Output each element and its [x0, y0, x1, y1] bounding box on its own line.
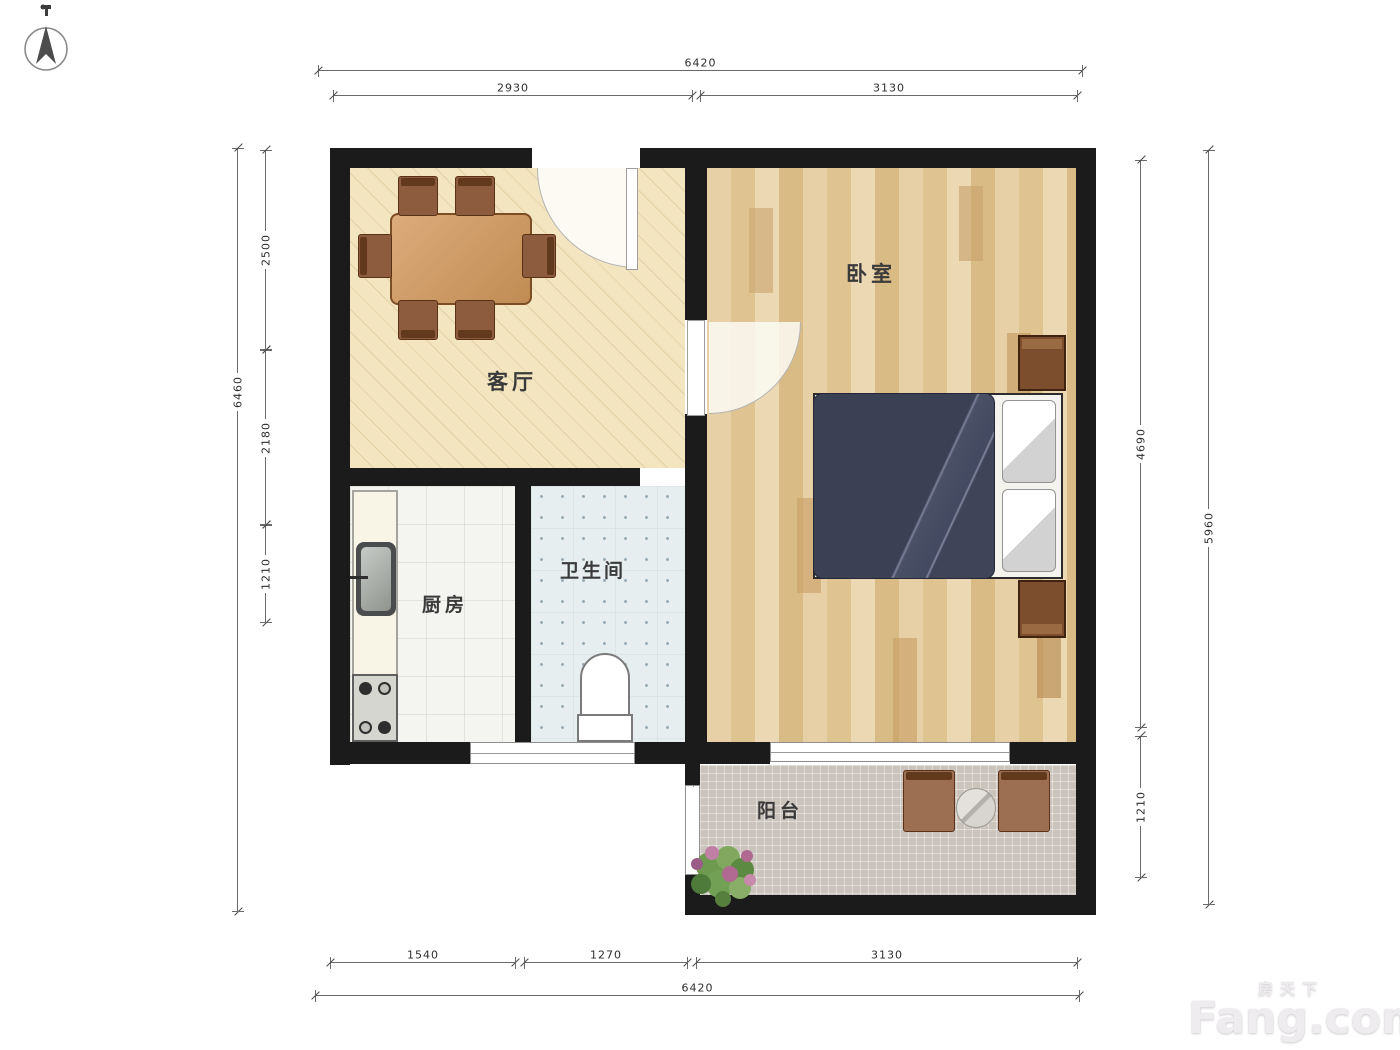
dimension-label: 1210	[1135, 788, 1148, 826]
wall-segment	[685, 148, 707, 320]
dimension-right-outer: 5960	[1208, 150, 1209, 905]
wood-plank-patch	[749, 208, 773, 293]
wall-segment	[685, 764, 700, 785]
dimension-left-seg3: 1210	[265, 525, 266, 623]
watermark-en: Fang.com	[1188, 993, 1394, 1044]
burner	[359, 682, 372, 695]
dimension-left-outer: 6460	[237, 148, 238, 912]
dimension-bottom-seg1: 1540	[330, 962, 516, 963]
wall-segment	[330, 148, 532, 168]
dimension-label: 4690	[1135, 425, 1148, 463]
dining-table	[390, 213, 532, 305]
floor-plan: 客厅 卧室 厨房 卫生间 阳台 6420 2930 3130 1540 1270…	[0, 0, 1400, 1050]
toilet-tank	[577, 714, 633, 742]
wood-plank-patch	[959, 186, 983, 261]
potted-plant	[688, 836, 762, 908]
dimension-top-seg2: 3130	[700, 95, 1078, 96]
dimension-top-seg1: 2930	[333, 95, 693, 96]
balcony-chair	[903, 770, 955, 832]
kitchen-sink	[356, 542, 396, 616]
dimension-bottom-seg2: 1270	[524, 962, 688, 963]
dimension-label: 2930	[494, 82, 532, 95]
wall-segment	[635, 742, 770, 764]
dimension-label: 6460	[232, 373, 245, 411]
balcony-chair	[998, 770, 1050, 832]
nightstand-top	[1022, 624, 1062, 634]
dimension-bottom-outer: 6420	[315, 995, 1080, 996]
window	[470, 742, 635, 764]
wall-segment	[1076, 148, 1096, 915]
sink-faucet	[350, 576, 368, 579]
dining-chair	[398, 176, 438, 216]
wall-segment	[685, 414, 707, 764]
sink-basin	[361, 547, 391, 611]
wood-plank-patch	[893, 638, 917, 748]
wall-segment	[330, 148, 350, 765]
wall-segment	[515, 486, 531, 742]
dining-chair	[398, 300, 438, 340]
nightstand	[1018, 335, 1066, 391]
burner	[359, 721, 372, 734]
room-label-balcony: 阳台	[757, 796, 803, 823]
balcony-sliding-door	[770, 742, 1010, 762]
dimension-label: 1270	[587, 949, 625, 962]
dimension-label: 3130	[868, 949, 906, 962]
dining-chair	[522, 234, 556, 278]
dimension-left-seg1: 2500	[265, 150, 266, 350]
bed-pillow	[1002, 400, 1056, 483]
dimension-bottom-seg3: 3130	[696, 962, 1078, 963]
wall-segment	[640, 148, 1096, 168]
room-label-kitchen: 厨房	[422, 590, 468, 617]
fang-watermark: 房天下 Fang.com	[1188, 978, 1394, 1044]
toilet-bowl	[580, 653, 630, 717]
room-label-living: 客厅	[487, 366, 537, 396]
dimension-left-seg2: 2180	[265, 350, 266, 525]
wall-segment	[330, 742, 470, 764]
dimension-top-outer: 6420	[318, 70, 1083, 71]
dimension-label: 2500	[260, 231, 273, 269]
stove	[352, 674, 398, 742]
burner	[378, 721, 391, 734]
dimension-right-seg1: 4690	[1140, 160, 1141, 728]
dining-chair	[358, 234, 392, 278]
compass-icon	[16, 2, 76, 76]
entry-door-leaf	[626, 168, 638, 270]
dimension-label: 3130	[870, 82, 908, 95]
room-label-bathroom: 卫生间	[560, 556, 626, 583]
dimension-label: 1210	[260, 555, 273, 593]
dining-chair	[455, 300, 495, 340]
dimension-right-seg2: 1210	[1140, 736, 1141, 878]
dimension-label: 6420	[682, 57, 720, 70]
dimension-label: 1540	[404, 949, 442, 962]
bed-pillow	[1002, 489, 1056, 572]
nightstand-top	[1022, 339, 1062, 349]
balcony-table	[956, 788, 996, 828]
bedroom-door-leaf	[687, 320, 705, 416]
burner	[378, 682, 391, 695]
dimension-label: 6420	[679, 982, 717, 995]
wall-segment	[330, 468, 640, 486]
bed-duvet	[813, 393, 995, 579]
dimension-label: 5960	[1203, 509, 1216, 547]
room-label-bedroom: 卧室	[846, 258, 896, 288]
nightstand	[1018, 580, 1066, 638]
dimension-label: 2180	[260, 419, 273, 457]
dining-chair	[455, 176, 495, 216]
